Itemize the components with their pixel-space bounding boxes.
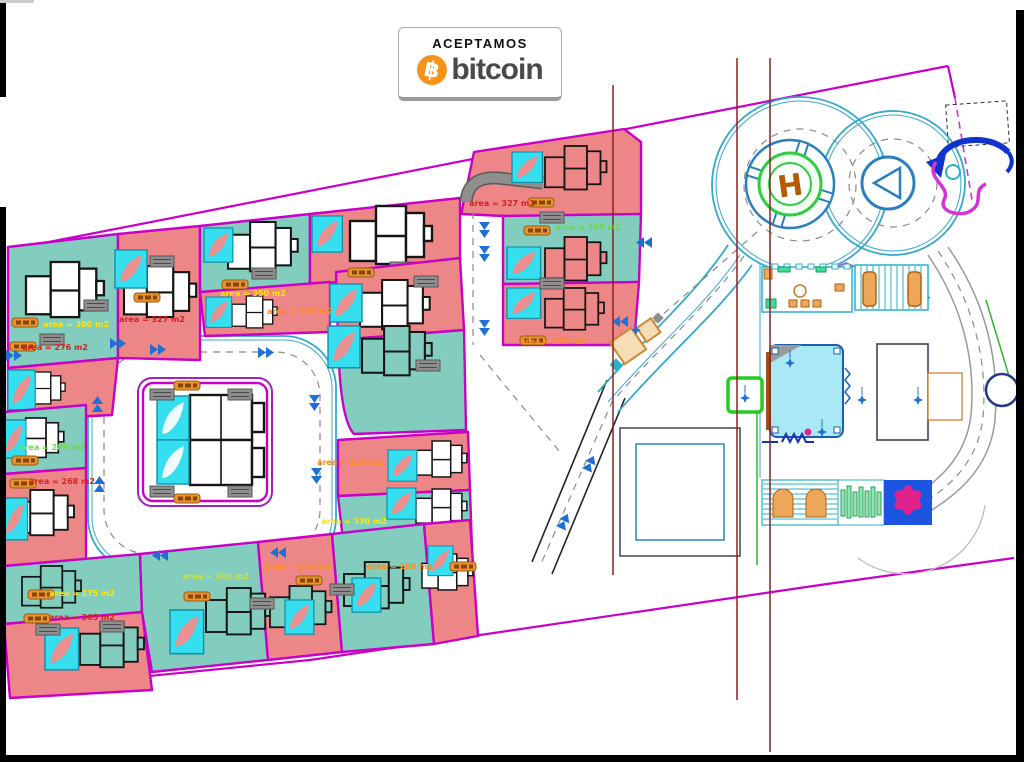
driveway [252,268,276,279]
lot-number-tag [524,226,550,235]
lot-number-tag [348,268,374,277]
lot-number-tag [296,576,322,585]
parking-area [855,265,928,310]
pool [204,228,233,262]
area-label: area = 290 m2 [367,562,433,571]
lot-number-tag [174,494,200,503]
driveway [228,486,252,497]
driveway [150,486,174,497]
driveway [228,389,252,400]
utility-circle [986,374,1018,406]
pool [157,440,189,484]
island-houses [190,395,264,485]
service-pad [928,373,962,420]
driveway [84,300,108,311]
reservoir-court [620,428,740,556]
lounger-arch [773,489,793,517]
gate-feature-circle [946,165,960,179]
area-label: area = 305 m2 [183,572,249,581]
badge-text-aceptamos: ACEPTAMOS [399,36,561,51]
pool [352,578,381,612]
lot-number-tag [450,562,476,571]
area-label: area = 303 m2 [267,307,333,316]
siteplan-drawing: H [0,0,1024,762]
area-label: area = 288 m2 [19,443,85,452]
helipad-h-marking: H [775,167,805,205]
area-label: area = 305 m2 [555,223,621,232]
entrance-arrow-tail [1007,152,1012,172]
pool [507,247,541,279]
pool [8,370,35,410]
helipad: H [746,140,834,228]
parked-car [863,272,876,306]
siteplan-canvas: H [0,0,1024,762]
roundabout [862,157,914,209]
north-road-loop: H [712,97,965,273]
sports-court [877,344,928,440]
lot-number-tag [134,293,160,302]
lot-number-tag [184,592,210,601]
lot-number-tag [24,614,50,623]
boundary-right-dashed [955,98,972,200]
boundary-corner [948,66,955,98]
lot-number-tag [174,381,200,390]
area-label: area = 365 m2 [49,613,115,622]
lot-cluster-bottom-center [140,520,478,672]
driveway [36,624,60,635]
badge-text-bitcoin: bitcoin [451,53,542,87]
pool [330,284,362,322]
flower-garden [884,480,932,525]
area-label: area = 350 m2 [220,289,286,298]
driveway [150,389,174,400]
area-label: area = 275 m2 [49,589,115,598]
area-label: area = 268 m2 [29,477,95,486]
pool [387,488,416,519]
pool [115,250,147,288]
lounger-arch [806,489,826,517]
planter-bars [841,486,881,518]
parked-car [908,272,921,306]
garden-strip [762,480,932,525]
area-label: area = 330 m2 [321,517,387,526]
area-label: area = 327 m2 [469,199,535,208]
lot-number-tag [12,318,38,327]
lot-cluster-center [328,258,466,434]
lot-cluster-bottom-left [4,554,152,698]
clubhouse-complex [760,263,962,525]
lot-cluster-top-right [462,129,641,345]
pool [312,216,342,252]
lot-number-tag [12,456,38,465]
pool [328,326,360,368]
driveway [150,256,174,267]
driveway [540,212,564,223]
area-label: area = 276 m2 [22,343,88,352]
driveway [416,360,440,371]
driveway [414,276,438,287]
central-island [138,378,272,506]
driveway [100,621,124,632]
driveway [330,584,354,595]
driveway [540,278,564,289]
area-label: area = 300 m2 [43,320,109,329]
pool [206,297,232,327]
pool [170,610,204,654]
bitcoin-accepted-badge: ACEPTAMOS ฿ bitcoin [398,27,562,101]
driveway [250,598,274,609]
pool [388,450,417,481]
area-label: area = 327 m2 [119,315,185,324]
area-label: area = 230 m2 [317,458,383,467]
pool [285,600,314,634]
bitcoin-coin-icon: ฿ [415,52,451,88]
pool [512,152,542,182]
area-label: area = 376 m2 [265,562,331,571]
clubhouse-pool [766,345,850,437]
area-label: area = 230 m2 [520,337,586,346]
pool [157,396,189,440]
lot-number-tag [222,280,248,289]
pool [428,546,453,576]
pool [507,288,541,318]
